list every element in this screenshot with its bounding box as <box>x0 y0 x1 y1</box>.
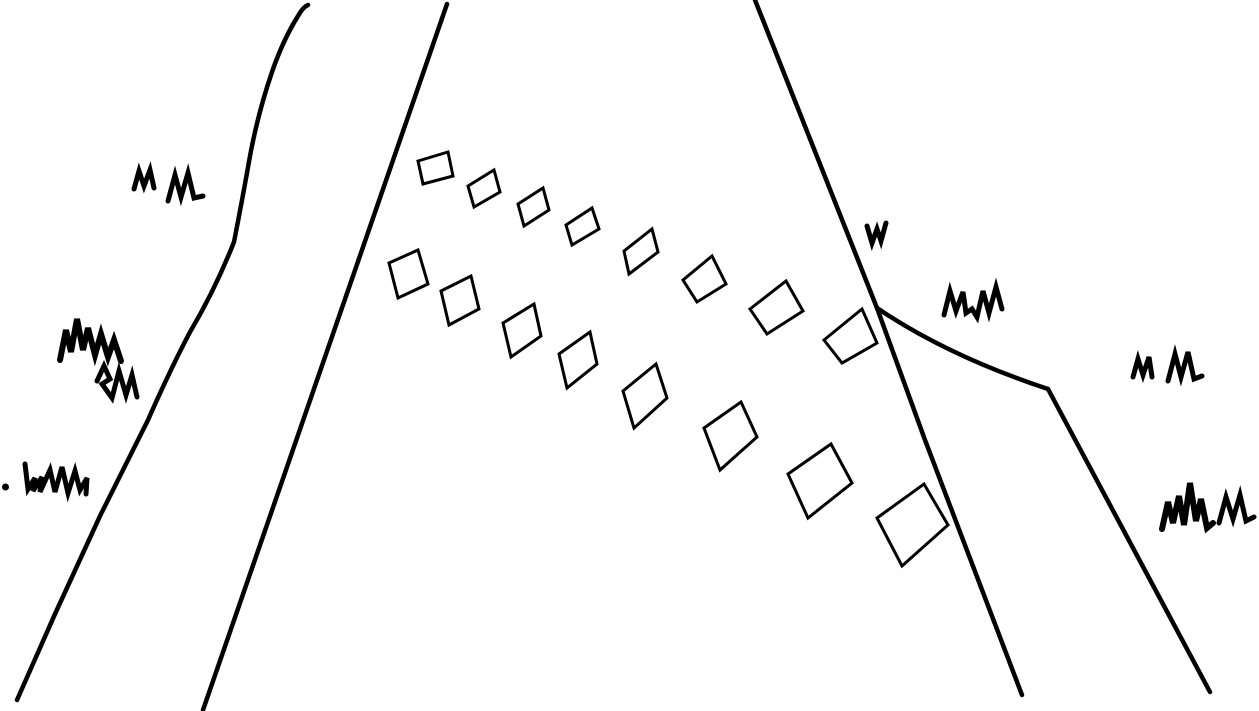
upper-dash-row-dash <box>683 256 726 302</box>
upper-dash-row-dash <box>624 229 658 274</box>
lower-dash-row-dash <box>441 276 479 325</box>
grass-tuft-top-left-small <box>134 170 154 189</box>
grass-tuft-bottom-right-clump <box>1162 483 1213 529</box>
lower-dash-row-dash <box>704 402 757 470</box>
grass-tuft-left-clump-upper <box>60 319 121 361</box>
grass-tuft-far-right-small <box>1133 357 1152 377</box>
upper-dash-row-dash <box>566 208 599 245</box>
grass-tuft-left-clump-lower <box>97 366 137 398</box>
upper-dash-row-dash <box>518 188 549 226</box>
lower-dash-row-dash <box>503 304 541 357</box>
grass-tuft-bottom-right-small <box>1219 495 1254 523</box>
grass-tuft-top-left-large <box>168 173 203 201</box>
lower-dash-row-dash <box>559 332 597 388</box>
lower-dash-row-dash <box>877 484 948 566</box>
upper-dash-row-dash <box>824 309 877 363</box>
grass-tuft-left-edge-dot <box>2 484 9 491</box>
road-sketch-page <box>0 0 1259 711</box>
upper-dash-row-dash <box>418 152 453 184</box>
grass-tuft-left-edge-zigzag <box>25 464 87 494</box>
lower-dash-row-dash <box>623 364 667 428</box>
road-sketch-canvas <box>0 0 1259 711</box>
right-outer-road-edge-line <box>1048 389 1210 692</box>
left-inner-road-edge-line <box>203 4 447 710</box>
right-main-road-edge-line <box>755 0 1022 695</box>
lower-dash-row-dash <box>788 444 852 518</box>
grass-tuft-right-of-fork <box>944 287 1002 317</box>
lower-dash-row-dash <box>389 250 428 298</box>
upper-dash-row-dash <box>750 281 803 334</box>
grass-tuft-mid-right-small <box>867 223 886 243</box>
upper-dash-row-dash <box>468 170 500 207</box>
grass-tuft-far-right-large <box>1168 352 1202 381</box>
